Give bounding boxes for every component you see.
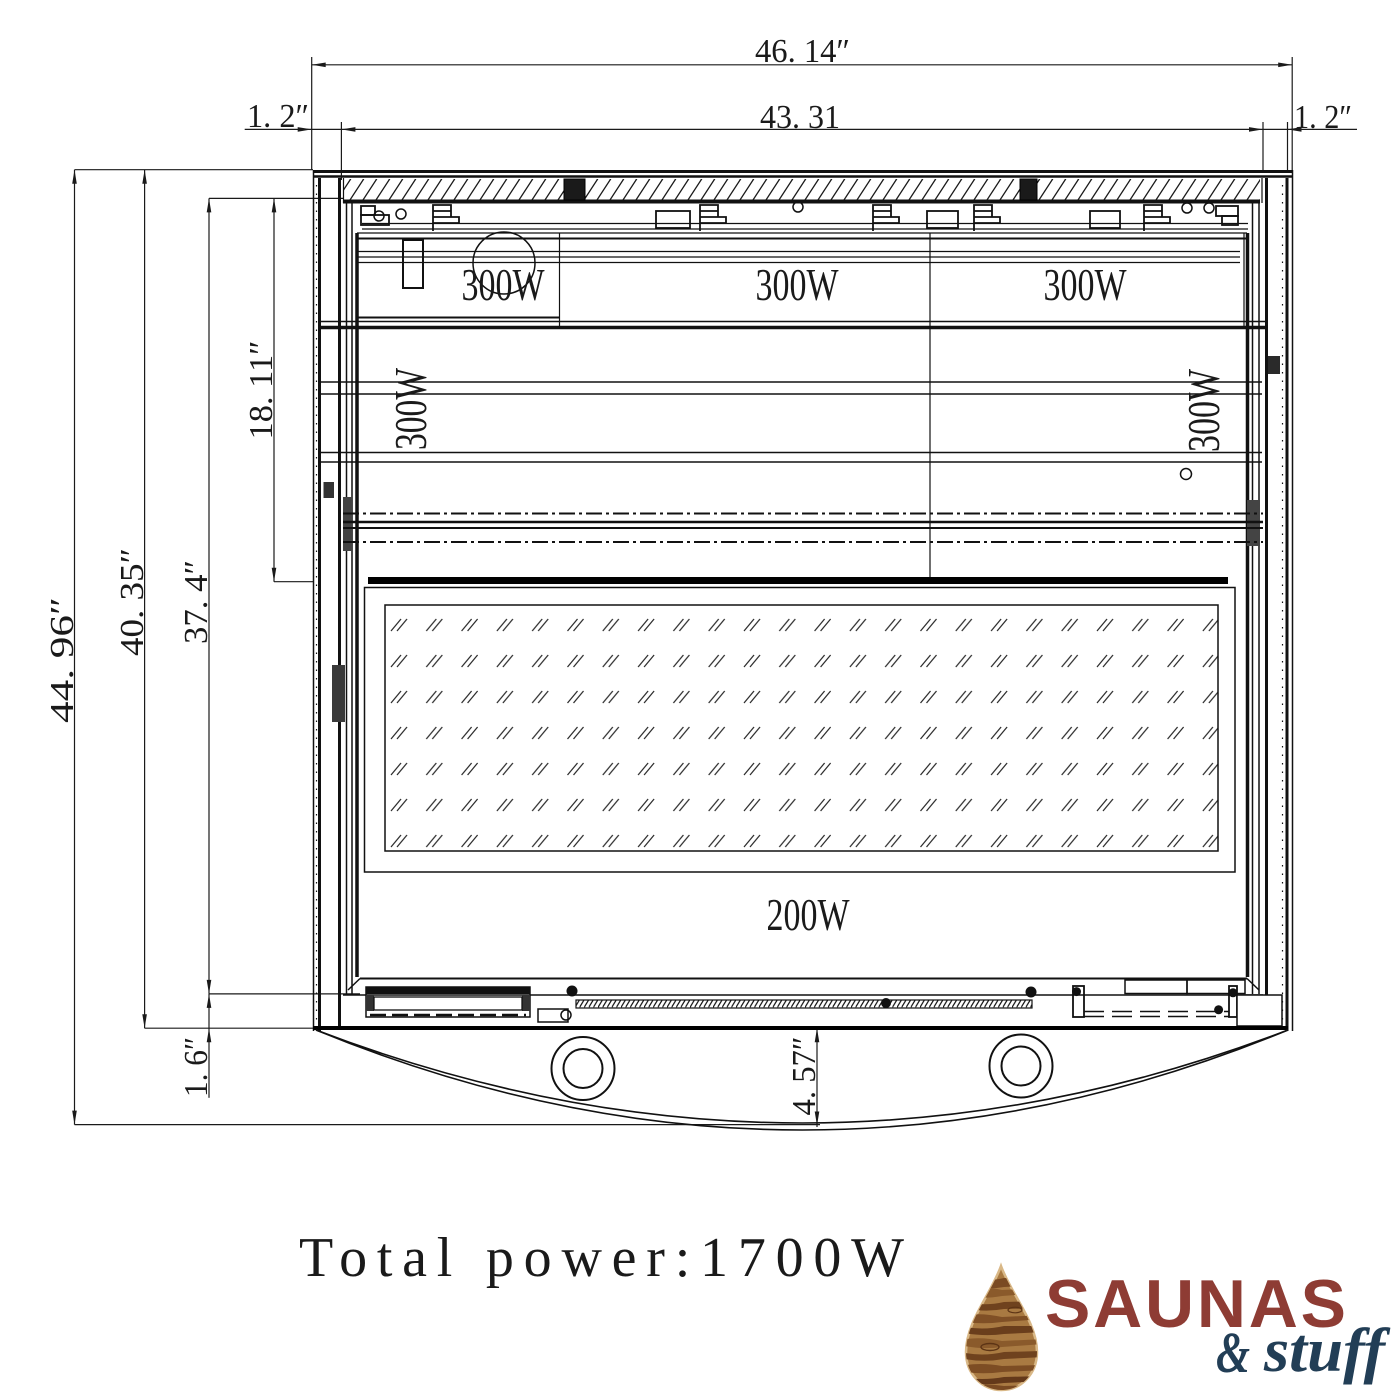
svg-text:44. 96″: 44. 96″	[44, 597, 81, 723]
svg-text:46. 14″: 46. 14″	[755, 33, 850, 70]
svg-text:300W: 300W	[756, 259, 839, 310]
svg-text:4. 57″: 4. 57″	[786, 1037, 823, 1116]
svg-text:37. 4″: 37. 4″	[178, 560, 215, 644]
svg-text:1. 6″: 1. 6″	[178, 1037, 215, 1097]
svg-text:300W: 300W	[462, 259, 545, 310]
svg-text:43. 31: 43. 31	[760, 99, 840, 136]
svg-text:Total power:1700W: Total power:1700W	[299, 1227, 904, 1289]
svg-text:&: &	[1216, 1320, 1250, 1385]
svg-text:1. 2″: 1. 2″	[247, 98, 309, 135]
svg-text:300W: 300W	[1044, 259, 1127, 310]
svg-text:18. 11″: 18. 11″	[243, 341, 280, 440]
svg-text:200W: 200W	[767, 889, 850, 940]
svg-text:300W: 300W	[1178, 369, 1229, 452]
svg-text:stuff: stuff	[1263, 1317, 1391, 1385]
svg-text:1. 2″: 1. 2″	[1294, 99, 1352, 136]
svg-text:40. 35″: 40. 35″	[114, 548, 151, 656]
svg-text:300W: 300W	[385, 368, 436, 450]
